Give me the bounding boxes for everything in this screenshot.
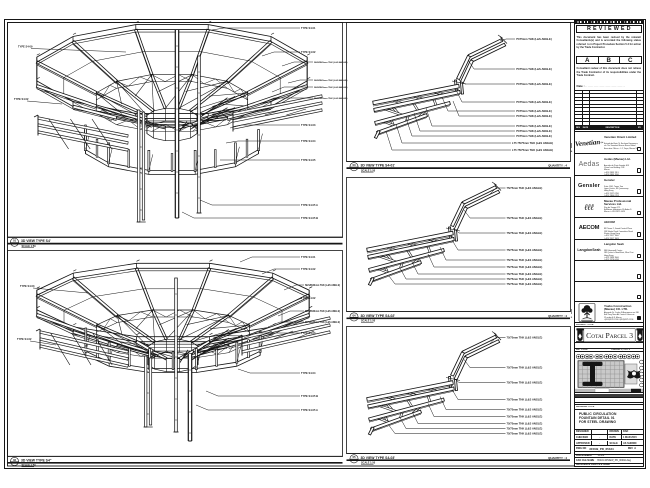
svg-text:05: 05 — [352, 455, 356, 459]
svg-text:75/75mm THK (L&S ANGLE): 75/75mm THK (L&S ANGLE) — [507, 415, 543, 419]
svg-text:75/75mm THK (L&S ANGLE): 75/75mm THK (L&S ANGLE) — [507, 398, 543, 402]
svg-text:75/75mm THK (L&S ANGLE): 75/75mm THK (L&S ANGLE) — [507, 272, 543, 276]
svg-text:3D VIEW TYPE S4'': 3D VIEW TYPE S4'' — [21, 458, 52, 462]
svg-text:75/75mm THK (L&S ANGLE): 75/75mm THK (L&S ANGLE) — [507, 336, 543, 340]
svg-text:TYPE S4-05 B: TYPE S4-05 B — [301, 394, 318, 398]
svg-text:75/75mm THK (L&S ANGLE): 75/75mm THK (L&S ANGLE) — [507, 216, 543, 220]
svg-text:75/75mm THK (L&S ANGLE): 75/75mm THK (L&S ANGLE) — [507, 258, 543, 262]
svg-text:3D VIEW TYPE S4-03': 3D VIEW TYPE S4-03' — [361, 456, 396, 460]
svg-text:75/75mm THK (L&S ANGLE): 75/75mm THK (L&S ANGLE) — [516, 37, 552, 41]
svg-text:3D VIEW TYPE S4': 3D VIEW TYPE S4' — [21, 239, 51, 243]
svg-text:75/75mm THK (L&S ANGLE): 75/75mm THK (L&S ANGLE) — [507, 186, 543, 190]
svg-text:01: 01 — [13, 239, 17, 243]
svg-text:SHS/RHSmm THK (L&S ANGLE): SHS/RHSmm THK (L&S ANGLE) — [314, 79, 348, 82]
svg-text:TYPE S4-05 A: TYPE S4-05 A — [301, 203, 318, 207]
svg-text:QUANTITY : 4: QUANTITY : 4 — [548, 314, 567, 318]
svg-text:75/75mm THK (L&S ANGLE): 75/75mm THK (L&S ANGLE) — [516, 67, 552, 71]
svg-text:75/75mm THK (L&S ANGLE): 75/75mm THK (L&S ANGLE) — [507, 231, 543, 235]
svg-text:75/75mm THK (L&S ANGLE): 75/75mm THK (L&S ANGLE) — [507, 427, 543, 431]
svg-text:QUANTITY : 4: QUANTITY : 4 — [548, 164, 567, 168]
svg-text:SHS/RHSmm THK (L&S ANGLE): SHS/RHSmm THK (L&S ANGLE) — [305, 310, 340, 313]
svg-text:SHS/RHSmm THK (L&S ANGLE): SHS/RHSmm THK (L&S ANGLE) — [305, 321, 340, 324]
svg-text:TYPE S4-03: TYPE S4-03 — [20, 284, 35, 288]
svg-text:TYPE S4-02: TYPE S4-02 — [301, 50, 316, 54]
svg-text:75/75mm THK (L&S ANGLE): 75/75mm THK (L&S ANGLE) — [507, 265, 543, 269]
svg-text:75/75mm THK (L&S ANGLE): 75/75mm THK (L&S ANGLE) — [516, 109, 552, 113]
svg-text:TYPE S4-02: TYPE S4-02 — [301, 267, 316, 271]
svg-text:TYPE S4-01: TYPE S4-01 — [301, 255, 316, 259]
svg-text:TYPE S4-02: TYPE S4-02 — [14, 97, 29, 101]
svg-text:TYPE S4-05 B: TYPE S4-05 B — [301, 216, 318, 220]
svg-text:TYPE S4-05: TYPE S4-05 — [301, 158, 316, 162]
svg-text:75/75mm THK (L&S ANGLE): 75/75mm THK (L&S ANGLE) — [507, 422, 543, 426]
svg-text:02: 02 — [13, 458, 17, 462]
svg-text:75/75mm THK (L&S ANGLE): 75/75mm THK (L&S ANGLE) — [507, 282, 543, 286]
svg-text:SHS/RHSmm THK (L&S ANGLE): SHS/RHSmm THK (L&S ANGLE) — [305, 284, 340, 287]
svg-text:75/75mm THK (L&S ANGLE): 75/75mm THK (L&S ANGLE) — [507, 366, 543, 370]
svg-text:3D VIEW TYPE S4-01': 3D VIEW TYPE S4-01' — [361, 164, 396, 168]
svg-text:TYPE S4-09: TYPE S4-09 — [18, 45, 33, 49]
svg-text:L75 75/75mm THK (L&S ANGLE): L75 75/75mm THK (L&S ANGLE) — [512, 141, 553, 145]
svg-text:75/75mm THK (L&S ANGLE): 75/75mm THK (L&S ANGLE) — [507, 381, 543, 385]
svg-text:75/75mm THK (L&S ANGLE): 75/75mm THK (L&S ANGLE) — [516, 100, 552, 104]
svg-text:75/75mm THK (L&S ANGLE): 75/75mm THK (L&S ANGLE) — [507, 277, 543, 281]
svg-text:TYPE S4-04: TYPE S4-04 — [301, 371, 316, 375]
svg-text:03: 03 — [352, 163, 356, 167]
svg-text:TYPE S4-03: TYPE S4-03 — [301, 123, 316, 127]
svg-text:QUANTITY : 4: QUANTITY : 4 — [548, 456, 567, 460]
svg-text:75/75mm THK (L&S ANGLE): 75/75mm THK (L&S ANGLE) — [516, 82, 552, 86]
svg-text:TYPE S4-02: TYPE S4-02 — [301, 296, 316, 300]
svg-text:75/75mm THK (L&S ANGLE): 75/75mm THK (L&S ANGLE) — [507, 248, 543, 252]
svg-text:SHS/RHSmm THK (L&S ANGLE): SHS/RHSmm THK (L&S ANGLE) — [314, 61, 348, 64]
svg-text:3D VIEW TYPE S4-02': 3D VIEW TYPE S4-02' — [361, 314, 396, 318]
svg-text:L75 75/75mm THK (L&S ANGLE): L75 75/75mm THK (L&S ANGLE) — [512, 148, 553, 152]
svg-text:75/75mm THK (L&S ANGLE): 75/75mm THK (L&S ANGLE) — [516, 134, 552, 138]
svg-text:SHS/RHSmm THK (L&S ANGLE): SHS/RHSmm THK (L&S ANGLE) — [314, 97, 348, 100]
svg-text:TYPE S4-03: TYPE S4-03 — [301, 331, 316, 335]
svg-text:75/75mm THK (L&S ANGLE): 75/75mm THK (L&S ANGLE) — [516, 114, 552, 118]
svg-text:75/75mm THK (L&S ANGLE): 75/75mm THK (L&S ANGLE) — [516, 129, 552, 133]
svg-text:TYPE S4-04: TYPE S4-04 — [301, 139, 316, 143]
svg-text:SHS/RHSmm THK (L&S ANGLE): SHS/RHSmm THK (L&S ANGLE) — [314, 86, 348, 89]
svg-text:75/75mm THK (L&S ANGLE): 75/75mm THK (L&S ANGLE) — [507, 432, 543, 436]
svg-text:TYPE S4-02: TYPE S4-02 — [17, 337, 32, 341]
svg-text:75/75mm THK (L&S ANGLE): 75/75mm THK (L&S ANGLE) — [507, 408, 543, 412]
svg-text:TYPE S4-01: TYPE S4-01 — [301, 26, 316, 30]
svg-text:75/75mm THK (L&S ANGLE): 75/75mm THK (L&S ANGLE) — [516, 124, 552, 128]
svg-text:04: 04 — [352, 313, 356, 317]
svg-text:TYPE S4-05 A: TYPE S4-05 A — [301, 408, 318, 412]
svg-text:SCALE 1:50: SCALE 1:50 — [361, 461, 376, 464]
